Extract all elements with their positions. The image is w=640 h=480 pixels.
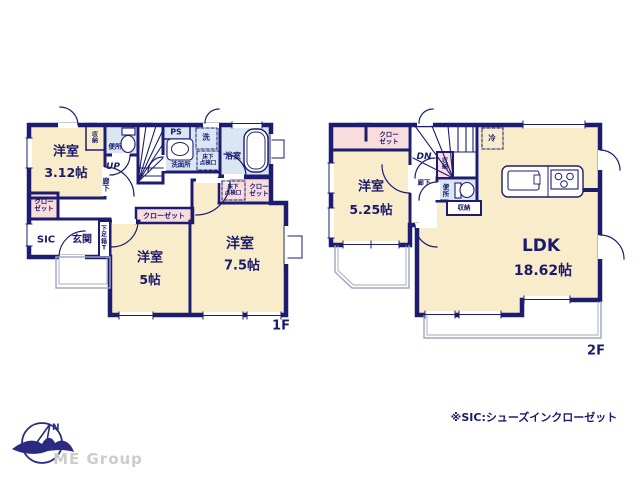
faucet-icon [534,175,540,184]
room-525-size: 5.25帖 [349,203,392,217]
room-5-fill [110,221,190,315]
stairs-up-label: UP [106,162,120,172]
toilet-bowl-icon [121,136,135,153]
hallway1-label: 廊下 [102,179,110,194]
hatch-closet-label: 床下 点検口 [225,185,242,198]
hallway2-label: 廊下 [418,179,431,186]
room-75-size: 7.5帖 [224,260,260,275]
room-5-size: 5帖 [139,273,160,287]
room-5-name: 洋室 [137,252,163,267]
storage-nook-label: 収納 [92,133,99,146]
room-525-fill [333,151,410,243]
toilet2-bowl-icon [460,183,474,198]
floor1-label: 1F [272,320,290,335]
sic-note: ※SIC:シューズインクローゼット [451,409,618,425]
floor2-label: 2F [587,345,605,360]
closet-right-label: クロー ゼット [249,184,269,199]
room-75-name: 洋室 [226,236,254,252]
compass-north-label: N [52,423,60,433]
brand-logo-text: ME Group [53,450,143,468]
bath-label: 浴室 [225,151,241,160]
entrance-label: 玄関 [72,234,92,246]
storage-hall-label: 収納 [458,204,471,211]
floor2-plan [328,109,624,338]
room-312-name: 洋室 [53,146,79,161]
room-525-name: 洋室 [358,181,384,196]
washroom-label: 洗面所 [171,161,191,168]
fridge-label: 冷 [488,135,496,144]
sic-label: SIC [37,234,55,246]
sink-bowl-icon [172,143,189,156]
laundry-label: 洗 [202,134,210,143]
ps-label: PS [170,127,182,136]
room-312-size: 3.12帖 [44,166,87,180]
closet-left-label: クロー ゼット [34,199,54,214]
toilet1-label: 便所 [109,143,122,150]
stove-icon [551,170,578,189]
shoe-cabinet-label: 下足箱T [101,226,108,251]
ldk-name: LDK [522,237,560,257]
closet2-label: クロー ゼット [379,132,399,147]
toilet-tank-icon [122,128,135,135]
toilet2-label: 便所 [442,184,449,198]
bathtub-inner [247,132,265,169]
storage-stairs-label: 収納 [442,159,449,172]
porch-outline [56,257,110,288]
closet-center-label: クローゼット [143,212,185,220]
floorplan-page: N 洋室 3.12帖 収納 便所 UP 廊下 PS 洗面所 洗 床下 点検口 浴… [0,0,640,480]
hatch-washroom-label: 床下 点検口 [200,155,217,168]
stairs-down-label: DN [416,152,431,162]
ldk-size: 18.62帖 [514,263,572,279]
stairs-up [138,126,163,182]
